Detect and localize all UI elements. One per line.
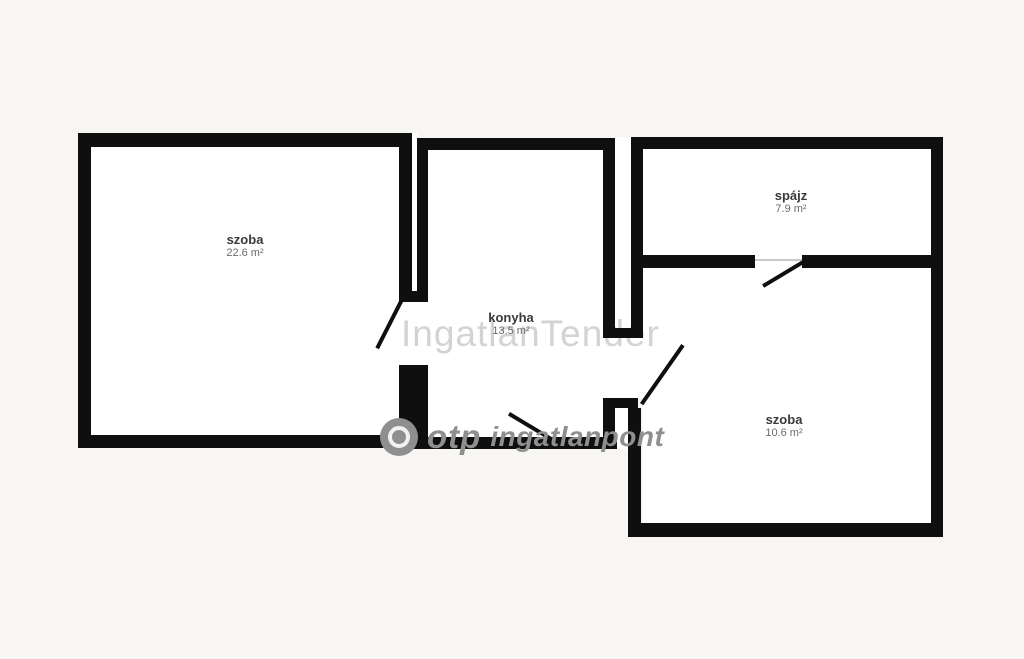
wall xyxy=(603,138,615,328)
wall xyxy=(631,268,643,328)
room-label-szoba-left: szoba 22.6 m² xyxy=(175,232,315,260)
room-area: 22.6 m² xyxy=(175,247,315,260)
room-fill-szoba-left xyxy=(90,146,400,436)
wall xyxy=(399,291,428,302)
otp-logo-ring xyxy=(388,426,410,448)
gap-between-walls-right xyxy=(615,137,631,328)
watermark-brand-suffix: ingatlanpont xyxy=(490,421,664,453)
wall xyxy=(78,133,91,448)
floor-plan: szoba 22.6 m² konyha 13.5 m² spájz 7.9 m… xyxy=(0,0,1024,659)
room-area: 10.6 m² xyxy=(714,427,854,440)
wall xyxy=(78,435,412,448)
wall xyxy=(417,138,615,150)
wall xyxy=(628,523,943,537)
watermark-otp-ingatlanpont: otp ingatlanpont xyxy=(380,418,664,456)
wall xyxy=(603,398,638,408)
wall xyxy=(78,133,412,147)
room-name: szoba xyxy=(714,412,854,427)
room-fill-konyha xyxy=(428,149,604,438)
wall xyxy=(931,137,943,537)
room-name: spájz xyxy=(721,188,861,203)
room-area: 7.9 m² xyxy=(721,203,861,216)
wall xyxy=(399,365,428,376)
room-name: konyha xyxy=(441,310,581,325)
room-label-spajz: spájz 7.9 m² xyxy=(721,188,861,216)
wall xyxy=(802,255,943,268)
room-label-szoba-right: szoba 10.6 m² xyxy=(714,412,854,440)
watermark-brand-name: otp xyxy=(427,418,481,456)
spajz-door-threshold xyxy=(755,259,802,261)
wall xyxy=(399,133,412,291)
room-name: szoba xyxy=(175,232,315,247)
otp-logo-icon xyxy=(380,418,418,456)
room-label-konyha: konyha 13.5 m² xyxy=(441,310,581,338)
wall xyxy=(631,137,643,268)
room-fill-szoba-right xyxy=(643,268,931,524)
wall xyxy=(631,137,943,149)
wall xyxy=(417,138,428,291)
wall xyxy=(603,328,643,338)
room-area: 13.5 m² xyxy=(441,325,581,338)
wall xyxy=(631,255,755,268)
